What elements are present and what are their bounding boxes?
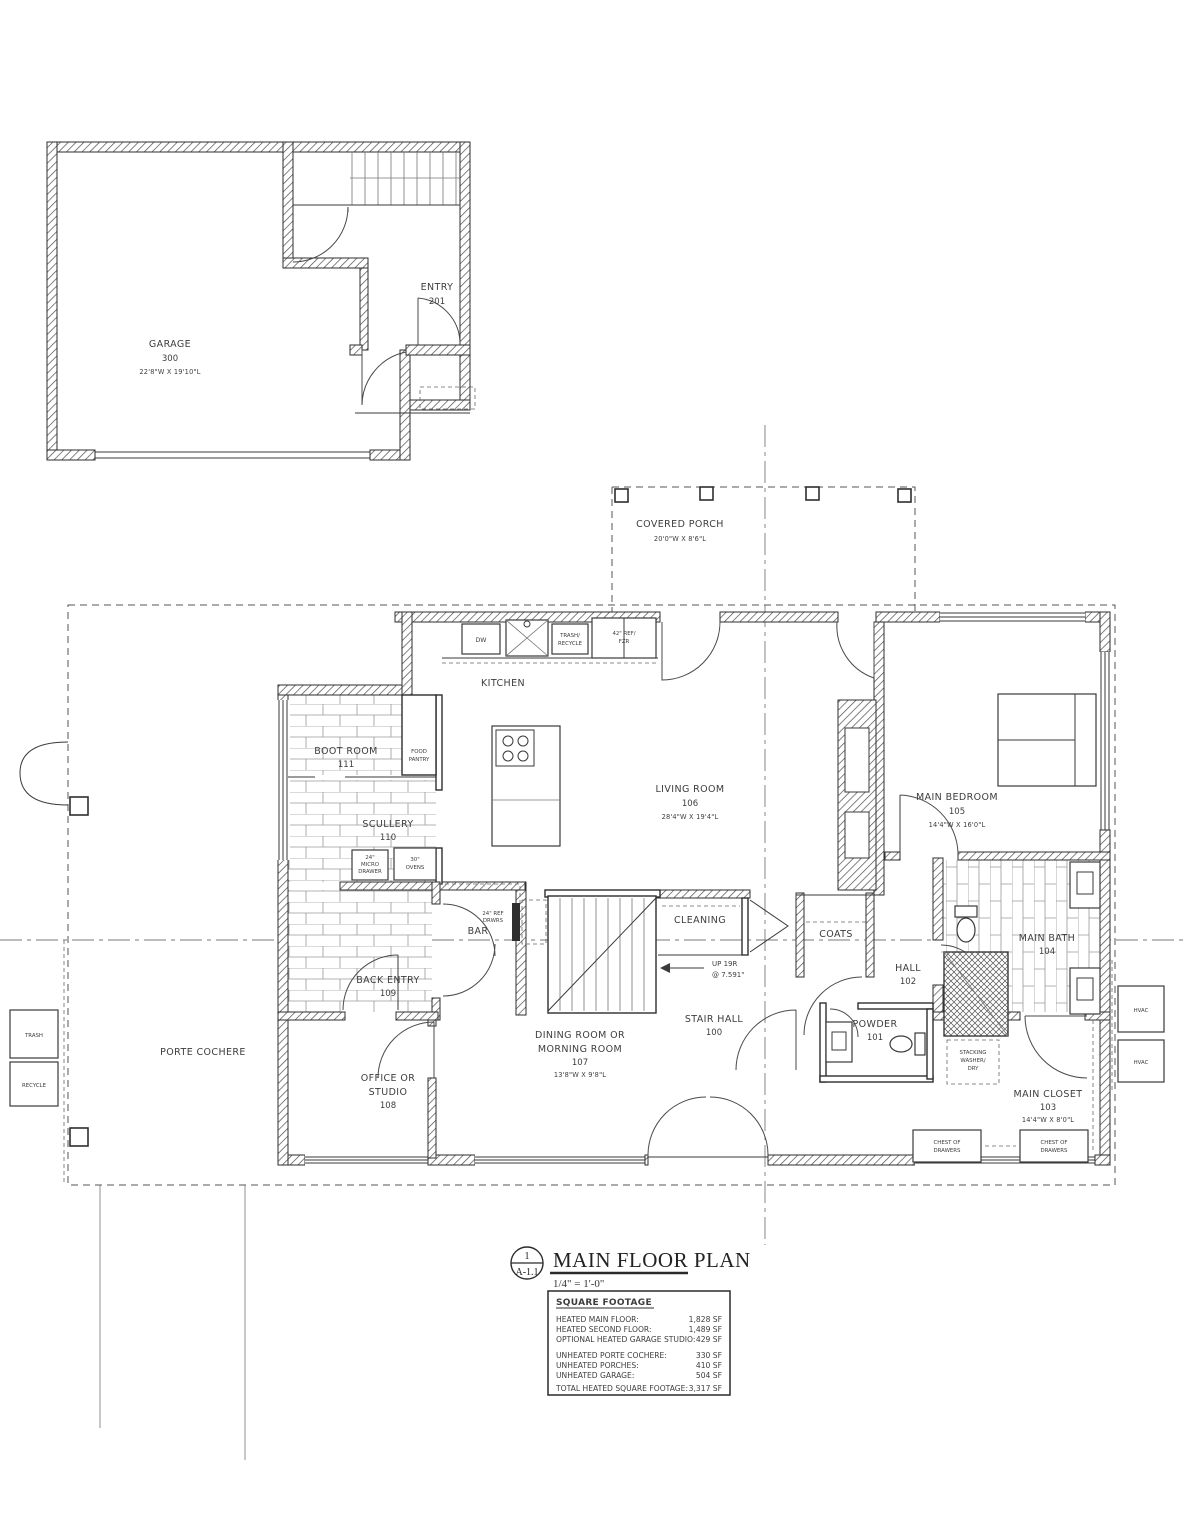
ovens-cabinet: 30" OVENS (394, 848, 436, 880)
ovens-label-1: 30" (410, 857, 419, 863)
sqft-row-value-2: 429 SF (696, 1335, 722, 1344)
plan-title: MAIN FLOOR PLAN (553, 1248, 751, 1272)
sqft-row-label-2: OPTIONAL HEATED GARAGE STUDIO: (556, 1335, 695, 1344)
recycle-label: RECYCLE (22, 1083, 47, 1089)
stair-hall-number: 100 (706, 1028, 722, 1038)
dining-label-1: DINING ROOM OR (535, 1030, 625, 1041)
bedroom-window-east (1098, 652, 1112, 830)
scullery-label: SCULLERY (362, 819, 413, 830)
kitchen-sink (506, 620, 548, 656)
main-bedroom-dims: 14'4"W X 16'0"L (929, 821, 986, 829)
sqft-row-label-4: UNHEATED PORCHES: (556, 1361, 639, 1370)
refrigerator: 42" REF/ FZR (592, 618, 656, 658)
chest-left-label-2: DRAWERS (934, 1148, 962, 1154)
sqft-row-value-5: 504 SF (696, 1371, 722, 1380)
dining-window (475, 1154, 645, 1166)
powder-number: 101 (867, 1033, 883, 1043)
ref-drawers-label-1: 24" REF (482, 911, 503, 917)
sheet-ref: A-1.1 (515, 1267, 538, 1278)
bath-vanity-north (1070, 862, 1100, 908)
sqft-row-label-3: UNHEATED PORTE COCHERE: (556, 1351, 667, 1360)
garage-label: GARAGE (149, 339, 191, 350)
sqft-row-label-5: UNHEATED GARAGE: (556, 1371, 634, 1380)
trash-label: TRASH (24, 1033, 43, 1039)
micro-label-2: MICRO (361, 862, 379, 868)
entry-number: 201 (429, 297, 445, 307)
square-footage-table: SQUARE FOOTAGE HEATED MAIN FLOOR: 1,828 … (548, 1291, 730, 1395)
porte-cochere-label: PORTE COCHERE (160, 1047, 246, 1058)
food-pantry-label-1: FOOD (411, 749, 427, 755)
dishwasher-label: DW (476, 637, 487, 644)
plan-scale: 1/4" = 1'-0" (553, 1278, 604, 1290)
hall-number: 102 (900, 977, 916, 987)
main-closet-label: MAIN CLOSET (1014, 1089, 1083, 1100)
title-block: 1 A-1.1 MAIN FLOOR PLAN 1/4" = 1'-0" (511, 1247, 751, 1290)
boot-room-number: 111 (338, 760, 354, 770)
fridge-label-1: 42" REF/ (612, 631, 635, 637)
hvac-label-1: HVAC (1134, 1008, 1149, 1014)
powder-label: POWDER (853, 1019, 898, 1030)
dining-number: 107 (572, 1058, 588, 1068)
powder-vanity (826, 1022, 852, 1062)
sqft-row-label-6: TOTAL HEATED SQUARE FOOTAGE: (555, 1384, 688, 1393)
ovens-label-2: OVENS (406, 865, 425, 871)
office-label-1: OFFICE OR (361, 1073, 416, 1084)
washer-label-2: WASHER/ (960, 1058, 985, 1064)
shower (944, 952, 1008, 1036)
floor-plan-drawing: GARAGE 300 22'8"W X 19'10"L ENTRY 201 CO… (0, 0, 1186, 1536)
garage-dims: 22'8"W X 19'10"L (139, 368, 200, 376)
washer-label-3: DRY (968, 1066, 980, 1072)
fridge-label-2: FZR (619, 639, 630, 645)
chest-of-drawers-right: CHEST OF DRAWERS (1020, 1130, 1088, 1162)
sqft-row-value-1: 1,489 SF (689, 1325, 722, 1334)
main-closet-number: 103 (1040, 1103, 1056, 1113)
chest-right-label-2: DRAWERS (1041, 1148, 1069, 1154)
main-closet-dims: 14'4"W X 8'0"L (1022, 1116, 1074, 1124)
scullery-window (276, 700, 290, 860)
office-label-2: STUDIO (369, 1087, 408, 1098)
sqft-row-value-6: 3,317 SF (689, 1384, 722, 1393)
back-entry-label: BACK ENTRY (356, 975, 419, 986)
sqft-row-label-0: HEATED MAIN FLOOR: (556, 1315, 639, 1324)
hall-label: HALL (895, 963, 921, 974)
garage-structure: GARAGE 300 22'8"W X 19'10"L ENTRY 201 (47, 142, 475, 460)
stair-note-2: @ 7.591" (712, 971, 744, 979)
trash-recycle-label-1: TRASH/ (559, 633, 580, 639)
boot-room-label: BOOT ROOM (314, 746, 377, 757)
garage-stairs (293, 152, 460, 205)
back-entry-number: 109 (380, 989, 396, 999)
bath-toilet (955, 906, 977, 942)
scullery-number: 110 (380, 833, 396, 843)
dining-label-2: MORNING ROOM (538, 1044, 622, 1055)
covered-porch-dims: 20'0"W X 8'6"L (654, 535, 706, 543)
bar-fixtures: 24" REF DRWRS (438, 884, 546, 944)
micro-drawer-cabinet: 24" MICRO DRAWER (352, 850, 388, 880)
chest-left-label-1: CHEST OF (934, 1140, 961, 1146)
sqft-row-value-4: 410 SF (696, 1361, 722, 1370)
dining-dims: 13'8"W X 9'8"L (554, 1071, 606, 1079)
bath-vanity-south (1070, 968, 1100, 1014)
food-pantry-label-2: PANTRY (409, 757, 430, 763)
kitchen-label: KITCHEN (481, 678, 525, 689)
floor-plan-sheet: GARAGE 300 22'8"W X 19'10"L ENTRY 201 CO… (0, 0, 1186, 1536)
covered-porch: COVERED PORCH 20'0"W X 8'6"L (612, 487, 915, 615)
office-number: 108 (380, 1101, 396, 1111)
powder-toilet (890, 1033, 925, 1055)
bedroom-window (940, 610, 1085, 624)
garage-number: 300 (162, 354, 178, 364)
main-bath-label: MAIN BATH (1019, 933, 1075, 944)
sqft-row-label-1: HEATED SECOND FLOOR: (556, 1325, 652, 1334)
bedroom-builtin (998, 694, 1096, 786)
stacking-washer-dryer: STACKING WASHER/ DRY (947, 1040, 999, 1084)
washer-label-1: STACKING (960, 1050, 987, 1056)
square-footage-heading: SQUARE FOOTAGE (556, 1298, 652, 1308)
living-room-number: 106 (682, 799, 698, 809)
sqft-row-value-0: 1,828 SF (689, 1315, 722, 1324)
main-bedroom-label: MAIN BEDROOM (916, 792, 998, 803)
trash-recycle-label-2: RECYCLE (558, 641, 583, 647)
trash-recycle-cabinet (552, 624, 588, 654)
coats-label: COATS (819, 929, 853, 940)
kitchen-island (492, 726, 560, 846)
entry-label: ENTRY (421, 282, 454, 293)
chest-right-label-1: CHEST OF (1041, 1140, 1068, 1146)
main-bath-number: 104 (1039, 947, 1055, 957)
office-window (305, 1154, 428, 1166)
chest-of-drawers-left: CHEST OF DRAWERS (913, 1130, 981, 1162)
cleaning-label: CLEANING (674, 915, 726, 926)
detail-number: 1 (525, 1251, 530, 1262)
covered-porch-label: COVERED PORCH (636, 519, 724, 530)
ref-drawers-label-2: DRWRS (483, 918, 504, 924)
micro-label-3: DRAWER (358, 869, 382, 875)
stair-hall-label: STAIR HALL (685, 1014, 744, 1025)
hvac-label-2: HVAC (1134, 1060, 1149, 1066)
hvac-pads: HVAC HVAC (1118, 986, 1164, 1082)
micro-label-1: 24" (365, 855, 374, 861)
living-room-dims: 28'4"W X 19'4"L (662, 813, 719, 821)
living-room-label: LIVING ROOM (655, 784, 724, 795)
stair-note-1: UP 19R (712, 960, 737, 968)
sqft-row-value-3: 330 SF (696, 1351, 722, 1360)
bar-label: BAR (468, 926, 489, 937)
main-bedroom-number: 105 (949, 807, 965, 817)
trash-pad: TRASH RECYCLE (10, 1010, 58, 1106)
fireplace (838, 700, 876, 890)
